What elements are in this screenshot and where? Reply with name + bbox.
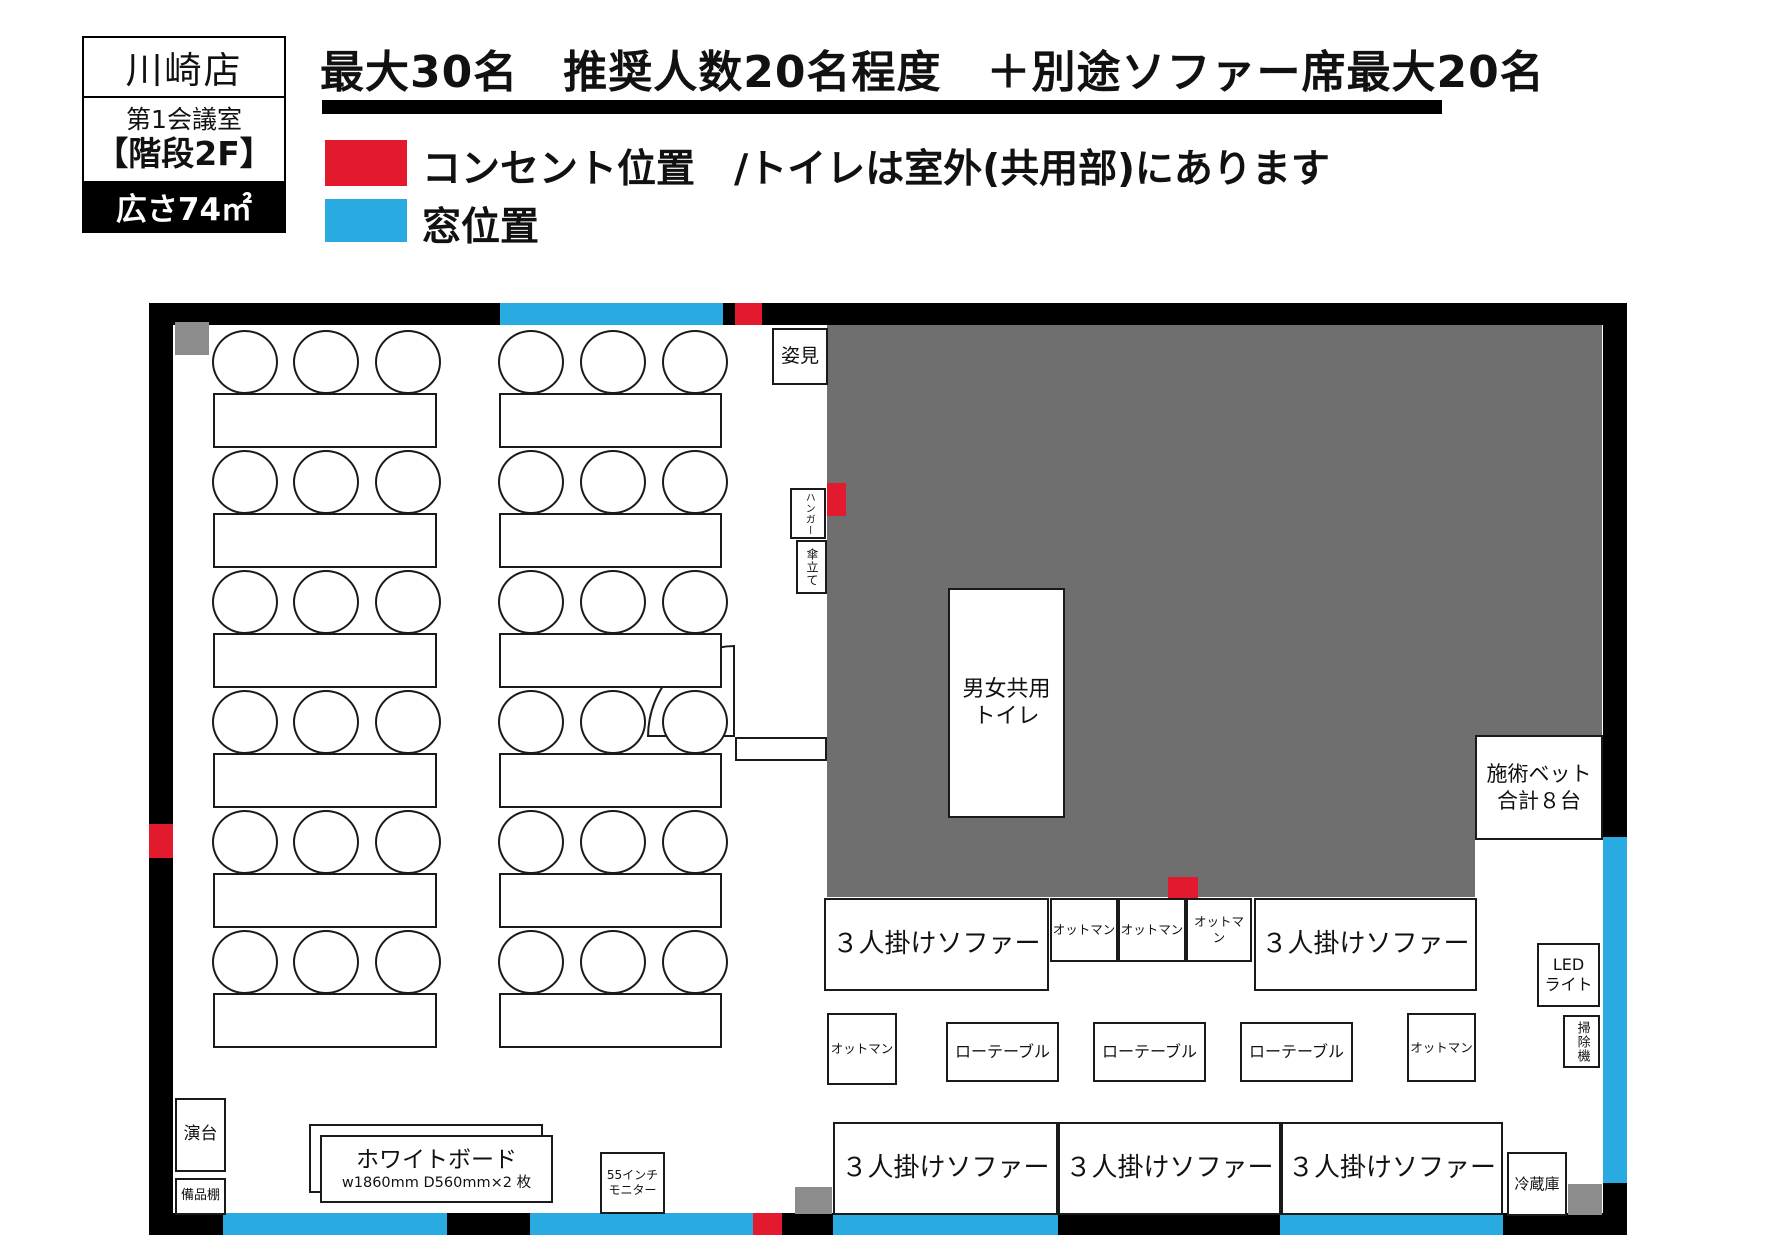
- chair: [662, 930, 728, 994]
- lectern-label: 演台: [184, 1124, 218, 1145]
- outlet-marker-gray-wall-left: [827, 483, 846, 516]
- table: [213, 873, 437, 928]
- capacity-headline: 最大30名 推奨人数20名程度 ＋別途ソファー席最大20名: [320, 36, 1520, 100]
- table: [213, 513, 437, 568]
- chair: [498, 810, 564, 874]
- chair: [375, 690, 441, 754]
- window-segment-right: [1603, 837, 1627, 1183]
- chair: [375, 810, 441, 874]
- led-light-line1: LED: [1544, 955, 1592, 975]
- vacuum-label: 掃除機: [1573, 1021, 1589, 1063]
- window-legend-swatch: [325, 199, 407, 242]
- treatment-bed-line2: 合計８台: [1487, 788, 1592, 814]
- chair: [662, 810, 728, 874]
- sofa-row3-2: ３人掛けソファー: [1058, 1122, 1281, 1215]
- chair: [212, 690, 278, 754]
- vacuum-box: 掃除機: [1563, 1015, 1600, 1068]
- chair: [212, 930, 278, 994]
- chair: [662, 330, 728, 394]
- sofa-row1-left: ３人掛けソファー: [824, 898, 1049, 991]
- window-segment-bottom-1: [223, 1213, 447, 1235]
- table: [499, 873, 722, 928]
- table: [499, 753, 722, 808]
- ottoman-row1-1: オットマン: [1050, 898, 1118, 962]
- room-name-block: 第1会議室 【階段2F】: [84, 96, 284, 181]
- window-legend-label: 窓位置: [422, 196, 539, 252]
- ottoman-row1-2: オットマン: [1118, 898, 1186, 962]
- chair: [580, 930, 646, 994]
- ottoman-label: オットマン: [1410, 1040, 1473, 1056]
- treatment-bed-line1: 施術ベット: [1487, 761, 1592, 787]
- chair: [293, 930, 359, 994]
- outlet-marker-left: [149, 824, 173, 858]
- toilet-label-line2: トイレ: [962, 703, 1050, 731]
- table: [213, 393, 437, 448]
- chair: [580, 810, 646, 874]
- chair: [498, 570, 564, 634]
- chair: [498, 330, 564, 394]
- ottoman-label: オットマン: [1121, 922, 1184, 938]
- ottoman-row2-left: オットマン: [827, 1013, 897, 1085]
- low-table-2: ローテーブル: [1093, 1022, 1206, 1082]
- chair: [293, 450, 359, 514]
- store-name: 川崎店: [84, 38, 284, 96]
- treatment-bed-box: 施術ベット 合計８台: [1475, 735, 1603, 840]
- common-area-upper: [827, 322, 1602, 735]
- equipment-shelf-label: 備品棚: [181, 1188, 220, 1204]
- chair: [375, 570, 441, 634]
- common-area-lower: [827, 735, 1475, 897]
- floor-note: 【階段2F】: [84, 135, 284, 173]
- monitor-box: 55インチ モニター: [600, 1152, 665, 1214]
- table: [499, 633, 722, 688]
- chair: [375, 450, 441, 514]
- outlet-marker-bottom: [753, 1213, 782, 1235]
- room-area: 広さ74㎡: [84, 181, 284, 231]
- floor-plan-page: 川崎店 第1会議室 【階段2F】 広さ74㎡ 最大30名 推奨人数20名程度 ＋…: [0, 0, 1781, 1260]
- whiteboard-label: ホワイトボード: [342, 1146, 531, 1175]
- chair: [580, 570, 646, 634]
- chair: [293, 690, 359, 754]
- chair: [498, 930, 564, 994]
- window-segment-top: [500, 303, 723, 325]
- room-name: 第1会議室: [84, 104, 284, 135]
- low-table-label: ローテーブル: [1249, 1042, 1344, 1062]
- ottoman-label: オットマン: [831, 1041, 894, 1057]
- chair: [375, 330, 441, 394]
- outlet-marker-top: [735, 303, 762, 325]
- led-light-line2: ライト: [1544, 975, 1592, 995]
- wall-top: [149, 303, 1627, 325]
- table: [499, 513, 722, 568]
- low-table-1: ローテーブル: [946, 1022, 1059, 1082]
- chair: [293, 330, 359, 394]
- door-threshold: [735, 737, 827, 761]
- table: [499, 993, 722, 1048]
- window-segment-bottom-4: [1280, 1213, 1503, 1235]
- chair: [662, 690, 728, 754]
- window-segment-bottom-3: [833, 1213, 1058, 1235]
- monitor-line1: 55インチ: [607, 1168, 658, 1183]
- fridge-label: 冷蔵庫: [1514, 1175, 1559, 1194]
- chair: [212, 330, 278, 394]
- table: [213, 753, 437, 808]
- umbrella-stand-box: 傘立て: [796, 540, 827, 594]
- ottoman-row1-3: オットマン: [1186, 898, 1252, 962]
- sofa-row1-right: ３人掛けソファー: [1254, 898, 1477, 991]
- outlet-legend-swatch: [325, 140, 407, 186]
- mirror-box: 姿見: [772, 328, 828, 385]
- sofa-label: ３人掛けソファー: [1065, 1152, 1273, 1185]
- wall-left: [149, 303, 173, 1235]
- chair: [293, 810, 359, 874]
- sofa-label: ３人掛けソファー: [1288, 1152, 1496, 1185]
- equipment-shelf-box: 備品棚: [175, 1178, 226, 1215]
- outlet-legend-label: コンセント位置 /トイレは室外(共用部)にあります: [422, 138, 1330, 194]
- headline-divider: [322, 100, 1442, 114]
- gray-object-top-left: [175, 322, 209, 355]
- led-light-box: LED ライト: [1537, 943, 1600, 1007]
- room-info-card: 川崎店 第1会議室 【階段2F】 広さ74㎡: [82, 36, 286, 233]
- monitor-line2: モニター: [607, 1183, 658, 1198]
- chair: [662, 450, 728, 514]
- ottoman-label: オットマン: [1188, 914, 1250, 945]
- lectern-box: 演台: [175, 1098, 226, 1172]
- umbrella-stand-label: 傘立て: [804, 548, 819, 587]
- chair: [212, 570, 278, 634]
- outlet-marker-gray-wall-bottom: [1168, 877, 1198, 898]
- hanger-label: ハンガー: [802, 492, 815, 536]
- chair: [580, 690, 646, 754]
- chair: [212, 810, 278, 874]
- table: [213, 633, 437, 688]
- mirror-label: 姿見: [781, 345, 819, 369]
- chair: [498, 450, 564, 514]
- sofa-label: ３人掛けソファー: [832, 928, 1040, 961]
- ottoman-label: オットマン: [1053, 922, 1116, 938]
- chair: [498, 690, 564, 754]
- whiteboard-spec: w1860mm D560mm×2 枚: [342, 1174, 531, 1192]
- whiteboard-box: ホワイトボード w1860mm D560mm×2 枚: [320, 1135, 553, 1203]
- table: [499, 393, 722, 448]
- low-table-label: ローテーブル: [1102, 1042, 1197, 1062]
- chair: [580, 330, 646, 394]
- chair: [662, 570, 728, 634]
- ottoman-row2-right: オットマン: [1407, 1013, 1476, 1082]
- hanger-box: ハンガー: [790, 488, 826, 539]
- low-table-label: ローテーブル: [955, 1042, 1050, 1062]
- gray-object-bottom-right: [1568, 1184, 1602, 1215]
- gray-object-bottom-center: [795, 1187, 832, 1214]
- window-segment-bottom-2: [530, 1213, 753, 1235]
- table: [213, 993, 437, 1048]
- chair: [580, 450, 646, 514]
- sofa-row3-1: ３人掛けソファー: [833, 1122, 1058, 1215]
- chair: [293, 570, 359, 634]
- fridge-box: 冷蔵庫: [1507, 1152, 1567, 1216]
- sofa-label: ３人掛けソファー: [841, 1152, 1049, 1185]
- sofa-label: ３人掛けソファー: [1261, 928, 1469, 961]
- low-table-3: ローテーブル: [1240, 1022, 1353, 1082]
- chair: [375, 930, 441, 994]
- chair: [212, 450, 278, 514]
- toilet-label-line1: 男女共用: [962, 676, 1050, 704]
- toilet-box: 男女共用 トイレ: [948, 588, 1065, 818]
- sofa-row3-3: ３人掛けソファー: [1281, 1122, 1503, 1215]
